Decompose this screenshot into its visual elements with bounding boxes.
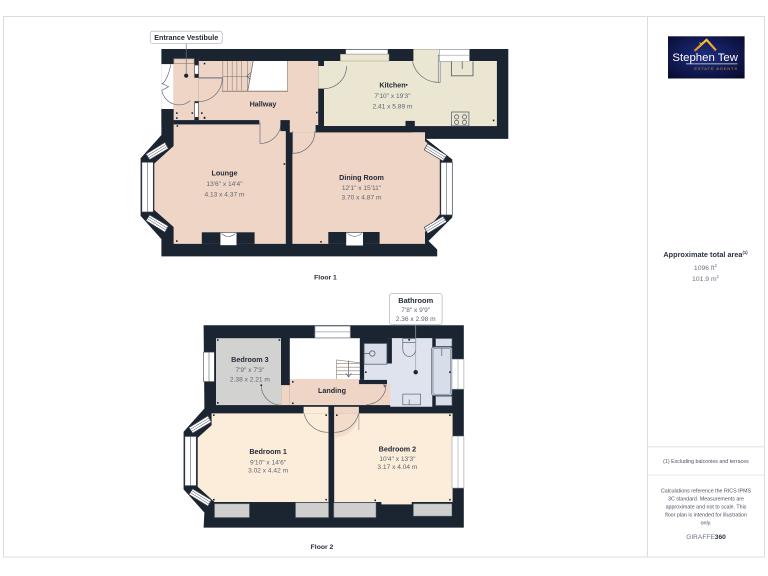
svg-text:ESTATE AGENTS: ESTATE AGENTS — [694, 67, 738, 71]
svg-text:7'8" x 9'9": 7'8" x 9'9" — [401, 307, 430, 314]
svg-text:3.02 x 4.42 m: 3.02 x 4.42 m — [248, 468, 288, 475]
svg-text:Bathroom: Bathroom — [398, 296, 433, 305]
svg-text:3.17 x 4.04 m: 3.17 x 4.04 m — [377, 464, 417, 471]
svg-text:Kitchen: Kitchen — [379, 81, 405, 90]
svg-text:7'9" x 7'3": 7'9" x 7'3" — [235, 367, 264, 374]
svg-text:floor plan is intended for ill: floor plan is intended for illustration — [665, 513, 747, 519]
svg-text:(1) Excluding balconies and te: (1) Excluding balconies and terraces — [663, 459, 749, 465]
svg-text:3.70 x 4.87 m: 3.70 x 4.87 m — [342, 194, 382, 201]
svg-text:101.9 m2: 101.9 m2 — [692, 274, 720, 283]
svg-text:9'10" x 14'6": 9'10" x 14'6" — [250, 460, 287, 467]
svg-text:Lounge: Lounge — [212, 169, 238, 178]
svg-text:2.36 x 2.98 m: 2.36 x 2.98 m — [396, 316, 436, 323]
svg-text:4.13 x 4.37 m: 4.13 x 4.37 m — [205, 191, 245, 198]
svg-text:7'10" x 19'3": 7'10" x 19'3" — [374, 93, 411, 100]
svg-text:12'1" x 15'11": 12'1" x 15'11" — [342, 185, 382, 192]
svg-text:approximate and not to scale.: approximate and not to scale. This — [666, 505, 747, 511]
svg-text:Entrance Vestibule: Entrance Vestibule — [154, 33, 218, 42]
svg-text:13'6" x 14'4": 13'6" x 14'4" — [206, 181, 243, 188]
svg-text:Stephen Tew: Stephen Tew — [672, 52, 738, 64]
svg-text:GIRAFFE360: GIRAFFE360 — [686, 534, 726, 541]
svg-text:Hallway: Hallway — [250, 100, 277, 109]
svg-text:Bedroom 3: Bedroom 3 — [231, 355, 269, 364]
svg-text:Calculations reference the RIC: Calculations reference the RICS IPMS — [661, 489, 752, 495]
svg-text:Approximate total area(1): Approximate total area(1) — [663, 250, 748, 259]
svg-text:3C standard. Measurements are: 3C standard. Measurements are — [668, 497, 744, 503]
svg-text:Landing: Landing — [318, 386, 346, 395]
svg-text:Floor 1: Floor 1 — [314, 275, 337, 282]
svg-text:1096 ft2: 1096 ft2 — [694, 263, 718, 272]
svg-text:2.38 x 2.21 m: 2.38 x 2.21 m — [230, 376, 270, 383]
svg-text:Bedroom 1: Bedroom 1 — [249, 447, 287, 456]
svg-text:2.41 x 5.89 m: 2.41 x 5.89 m — [373, 104, 413, 111]
svg-text:only.: only. — [701, 521, 712, 527]
svg-text:Floor 2: Floor 2 — [311, 544, 334, 551]
svg-text:10'4" x 13'3": 10'4" x 13'3" — [379, 456, 416, 463]
svg-text:Bedroom 2: Bedroom 2 — [379, 445, 417, 454]
svg-text:Dining Room: Dining Room — [339, 173, 384, 182]
